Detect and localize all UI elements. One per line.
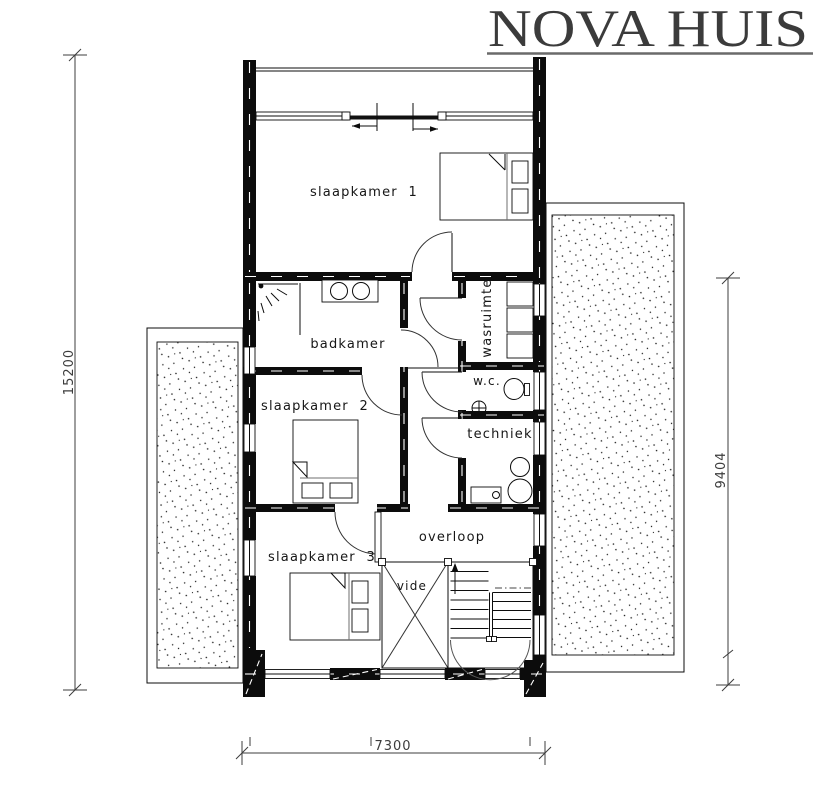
room-label-slaapkamer-1: slaapkamer 1	[310, 185, 418, 200]
room-label-vide: vide	[397, 579, 427, 593]
sliding-window-arrow-icon	[430, 126, 438, 132]
room-label-wc: w.c.	[473, 374, 501, 388]
sliding-window-arrow-icon	[352, 123, 360, 129]
floorplan-page: NOVA HUIS	[0, 0, 824, 807]
dimension-right: 9404	[714, 272, 740, 691]
newel-post	[445, 559, 452, 566]
terrace-stipple	[157, 342, 238, 668]
door-swing-icon	[412, 232, 452, 272]
door-swing-icon	[335, 512, 377, 554]
room-label-techniek: techniek	[467, 427, 532, 442]
dimension-left: 15200	[62, 49, 87, 696]
room-label-overloop: overloop	[419, 530, 485, 545]
room-labels: slaapkamer 1 badkamer wasruimte w.c. sla…	[261, 185, 533, 593]
room-label-slaapkamer-3: slaapkamer 3	[268, 550, 376, 565]
sliding-window	[256, 103, 533, 132]
pillow-icon	[302, 483, 323, 498]
staircase-icon	[379, 559, 537, 680]
dimension-left-value: 15200	[62, 349, 77, 395]
dimension-right-value: 9404	[714, 451, 729, 488]
double-bed-icon	[293, 420, 358, 503]
door-swing-icon	[422, 372, 462, 412]
double-washbasin-icon	[322, 280, 378, 302]
door-swing-icon	[420, 298, 462, 340]
pillow-icon	[352, 609, 368, 632]
room-label-wasruimte: wasruimte	[480, 278, 495, 357]
brand-logo: NOVA HUIS	[487, 0, 813, 58]
interior-walls	[243, 272, 546, 674]
pillow-icon	[352, 581, 368, 603]
water-heater-icon	[508, 479, 532, 503]
door-swing-icon	[401, 330, 438, 367]
door-swing-icon	[422, 418, 462, 458]
dimension-bottom-value: 7300	[374, 739, 411, 754]
terrace-stipple	[552, 215, 674, 655]
pillow-icon	[330, 483, 352, 498]
washer-dryer-stack-icon	[507, 282, 533, 358]
floorplan-canvas: NOVA HUIS	[0, 0, 824, 807]
newel-post	[379, 559, 386, 566]
terrace-right	[546, 203, 684, 672]
room-label-slaapkamer-2: slaapkamer 2	[261, 399, 369, 414]
boiler-icon	[508, 458, 532, 504]
stair-up-arrow-icon	[452, 563, 459, 594]
nightstand-icon	[512, 161, 528, 183]
dimension-bottom: 7300	[236, 737, 551, 765]
terrace-left	[147, 328, 243, 683]
worktop-icon	[471, 487, 501, 503]
double-bed-icon	[290, 573, 380, 640]
double-bed-icon	[440, 153, 533, 220]
hand-basin-icon	[472, 401, 486, 415]
shower-icon	[258, 283, 300, 335]
nightstand-icon	[512, 189, 528, 213]
brand-logo-text: NOVA HUIS	[488, 0, 808, 58]
toilet-icon	[504, 379, 530, 400]
newel-post	[530, 559, 537, 566]
room-label-badkamer: badkamer	[310, 337, 385, 352]
